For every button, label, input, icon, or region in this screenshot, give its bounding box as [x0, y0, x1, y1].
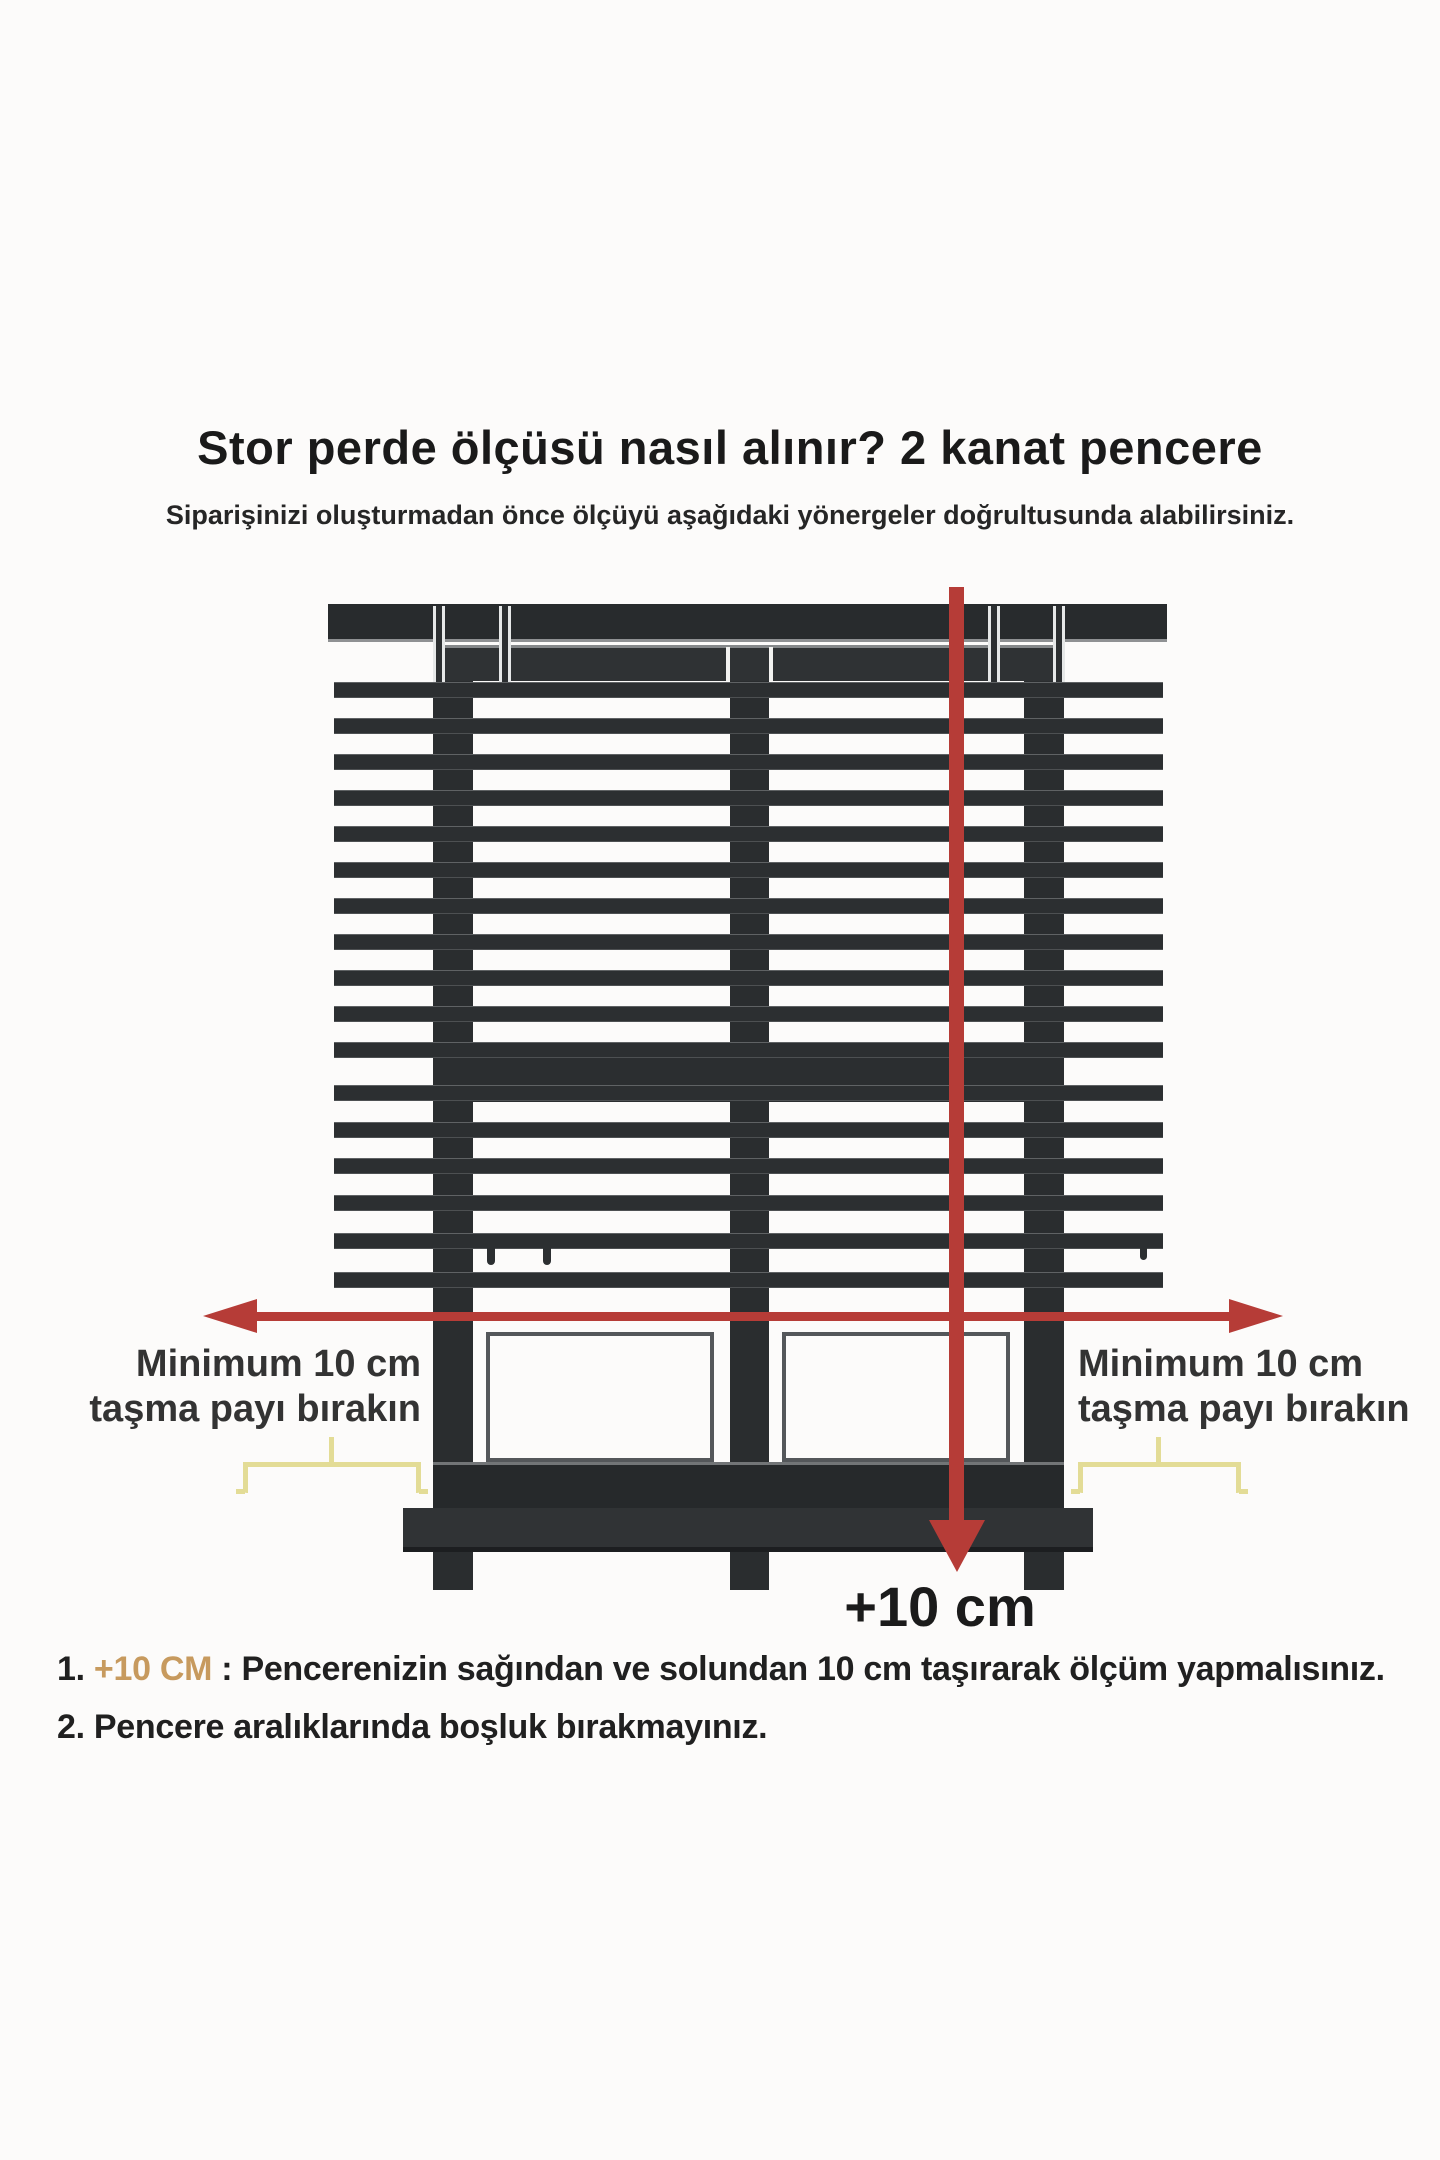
blind-slat [334, 718, 1163, 734]
blind-slat [334, 898, 1163, 914]
left-overhang-label-line1: Minimum 10 cm [81, 1342, 421, 1387]
blind-slat [334, 1233, 1163, 1249]
blind-cord-pull [487, 1243, 495, 1265]
width-arrow-right-head [1229, 1299, 1283, 1333]
step-1-number: 1. [57, 1650, 85, 1688]
window-frame-left-post [433, 645, 473, 1590]
window-bottom-rail [433, 1462, 1064, 1510]
window-sill [403, 1508, 1093, 1552]
blind-cord-pull [1140, 1241, 1147, 1260]
right-overhang-label-line1: Minimum 10 cm [1078, 1342, 1438, 1387]
right-overhang-brace-foot [1071, 1489, 1080, 1494]
page-title: Stor perde ölçüsü nasıl alınır? 2 kanat … [20, 420, 1440, 475]
height-arrow-down-head [929, 1520, 985, 1572]
left-overhang-brace-tick [329, 1437, 334, 1465]
right-overhang-label: Minimum 10 cm taşma payı bırakın [1078, 1342, 1438, 1432]
window-frame-mullion [730, 645, 769, 1590]
blind-slat [334, 754, 1163, 770]
blind-cord-pull [543, 1243, 551, 1265]
step-2-text: Pencere aralıklarında boşluk bırakmayını… [94, 1708, 767, 1746]
blind-slat [334, 1085, 1163, 1101]
blind-slat [334, 1158, 1163, 1174]
blind-header-bar [328, 604, 1167, 642]
left-overhang-brace-foot [236, 1489, 245, 1494]
blind-slat [334, 934, 1163, 950]
right-overhang-brace-foot [1239, 1489, 1248, 1494]
measurement-guide-infographic: Stor perde ölçüsü nasıl alınır? 2 kanat … [0, 0, 1440, 2160]
right-overhang-brace-tick [1156, 1437, 1161, 1465]
blind-slat [334, 1006, 1163, 1022]
blind-slat [334, 1272, 1163, 1288]
blind-ladder-strap [499, 606, 511, 692]
blind-head-rail [433, 645, 1064, 681]
head-rail-seam [769, 647, 773, 681]
blind-slat [334, 1195, 1163, 1211]
left-overhang-label: Minimum 10 cm taşma payı bırakın [81, 1342, 421, 1432]
blind-slat [334, 826, 1163, 842]
window-glass-pane-right [782, 1332, 1010, 1462]
width-arrow-left-head [203, 1299, 257, 1333]
width-arrow-line [255, 1312, 1232, 1321]
plus-10-cm-label: +10 cm [820, 1574, 1060, 1639]
blind-slat [334, 1042, 1163, 1058]
page-subtitle: Siparişinizi oluşturmadan önce ölçüyü aş… [20, 500, 1440, 531]
window-glass-pane-left [486, 1332, 714, 1462]
head-rail-seam [726, 647, 730, 681]
left-overhang-brace-foot [419, 1489, 428, 1494]
left-overhang-brace-line [243, 1462, 421, 1467]
step-1-text: : Pencerenizin sağından ve solundan 10 c… [221, 1650, 1384, 1688]
blind-slat [334, 1122, 1163, 1138]
step-1-highlight: +10 CM [94, 1650, 212, 1688]
instruction-step-2: 2. Pencere aralıklarında boşluk bırakmay… [57, 1708, 1427, 1747]
blind-slat [334, 862, 1163, 878]
window-frame-right-post [1024, 645, 1064, 1590]
left-overhang-label-line2: taşma payı bırakın [81, 1387, 421, 1432]
right-overhang-brace-line [1078, 1462, 1241, 1467]
blind-slat [334, 790, 1163, 806]
step-2-number: 2. [57, 1708, 85, 1746]
height-arrow-line [949, 587, 964, 1525]
right-overhang-label-line2: taşma payı bırakın [1078, 1387, 1438, 1432]
blind-ladder-strap [433, 606, 445, 692]
blind-ladder-strap [988, 606, 1000, 692]
blind-slat [334, 682, 1163, 698]
blind-ladder-strap [1053, 606, 1065, 692]
instruction-step-1: 1. +10 CM : Pencerenizin sağından ve sol… [57, 1650, 1427, 1689]
blind-slat [334, 970, 1163, 986]
